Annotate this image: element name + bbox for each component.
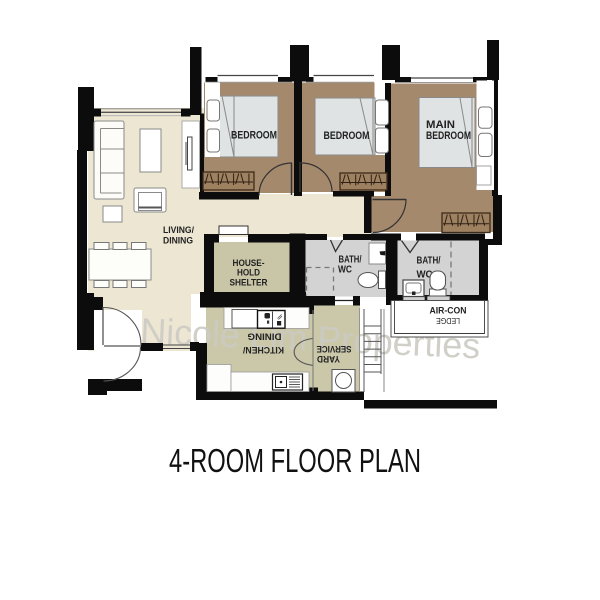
svg-text:HOLD: HOLD — [237, 268, 260, 278]
svg-text:LEDGE: LEDGE — [436, 316, 460, 326]
svg-text:KITCHEN/: KITCHEN/ — [243, 345, 284, 355]
svg-text:HOUSE-: HOUSE- — [233, 258, 265, 268]
svg-text:BEDROOM: BEDROOM — [426, 130, 471, 142]
svg-text:SHELTER: SHELTER — [230, 278, 268, 288]
svg-text:SERVICE: SERVICE — [317, 343, 352, 354]
svg-text:AIR-CON: AIR-CON — [430, 306, 467, 316]
svg-text:4-ROOM FLOOR PLAN: 4-ROOM FLOOR PLAN — [169, 442, 421, 479]
svg-text:DINING: DINING — [163, 236, 193, 247]
svg-text:BATH/: BATH/ — [417, 256, 441, 267]
svg-text:LIVING/: LIVING/ — [163, 225, 194, 236]
svg-text:WC: WC — [338, 265, 352, 276]
svg-text:DINING: DINING — [248, 332, 282, 342]
svg-text:BEDROOM: BEDROOM — [231, 130, 277, 142]
svg-text:BEDROOM: BEDROOM — [324, 130, 370, 142]
